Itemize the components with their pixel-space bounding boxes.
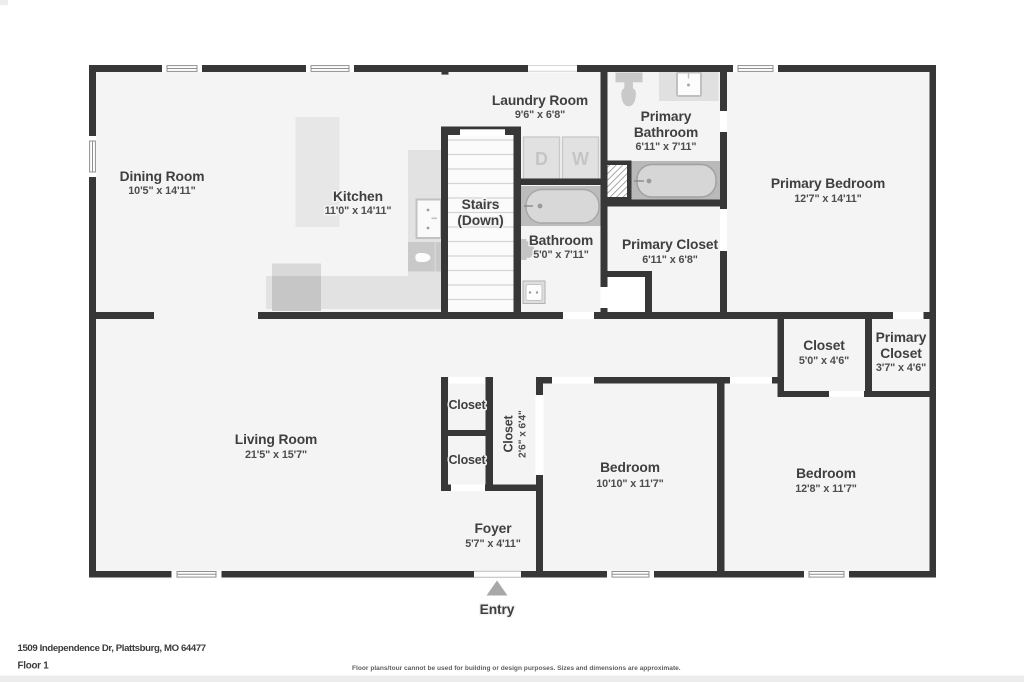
svg-text:Bathroom: Bathroom [529,233,593,248]
svg-text:12'7" x 14'11": 12'7" x 14'11" [794,193,861,205]
svg-text:Laundry Room: Laundry Room [492,93,588,108]
svg-text:Floor 1: Floor 1 [18,661,50,672]
svg-text:Floor plans/tour cannot be use: Floor plans/tour cannot be used for buil… [352,665,681,672]
svg-text:Primary: Primary [876,330,927,345]
svg-text:5'0" x 4'6": 5'0" x 4'6" [799,355,849,367]
svg-text:Bedroom: Bedroom [796,466,856,481]
svg-text:Closet: Closet [880,346,922,361]
svg-text:Bedroom: Bedroom [600,460,660,475]
svg-text:Primary: Primary [641,109,692,124]
svg-text:10'5" x 14'11": 10'5" x 14'11" [128,185,195,197]
svg-text:Foyer: Foyer [474,521,512,536]
svg-text:Entry: Entry [480,602,515,617]
svg-text:11'0" x 14'11": 11'0" x 14'11" [325,205,392,217]
svg-text:Closet: Closet [803,338,845,353]
svg-text:3'7" x 4'6": 3'7" x 4'6" [876,362,926,374]
svg-text:Primary Closet: Primary Closet [622,237,718,252]
svg-text:Primary Bedroom: Primary Bedroom [771,176,885,191]
svg-text:Closet: Closet [502,414,516,452]
svg-text:9'6" x 6'8": 9'6" x 6'8" [515,109,565,121]
svg-text:Bathroom: Bathroom [634,125,698,140]
svg-text:D: D [535,149,548,169]
svg-text:6'11" x 7'11": 6'11" x 7'11" [636,141,697,153]
svg-text:10'10" x 11'7": 10'10" x 11'7" [596,478,663,490]
svg-text:(Down): (Down) [457,213,503,228]
svg-text:Kitchen: Kitchen [333,189,383,204]
svg-text:1509 Independence Dr, Plattsbu: 1509 Independence Dr, Plattsburg, MO 644… [18,643,206,654]
svg-text:6'11" x 6'8": 6'11" x 6'8" [642,254,698,266]
svg-text:Stairs: Stairs [462,197,500,212]
svg-text:2'6" x 6'4": 2'6" x 6'4" [518,410,529,458]
svg-text:Dining Room: Dining Room [120,169,205,184]
svg-text:Living Room: Living Room [235,432,317,447]
svg-text:W: W [572,149,589,169]
svg-text:Closet: Closet [448,398,486,412]
svg-text:12'8" x 11'7": 12'8" x 11'7" [795,483,857,495]
svg-text:21'5" x 15'7": 21'5" x 15'7" [245,449,307,461]
svg-text:5'0" x 7'11": 5'0" x 7'11" [533,249,589,261]
svg-text:Closet: Closet [448,453,486,467]
svg-text:5'7" x 4'11": 5'7" x 4'11" [465,538,521,550]
